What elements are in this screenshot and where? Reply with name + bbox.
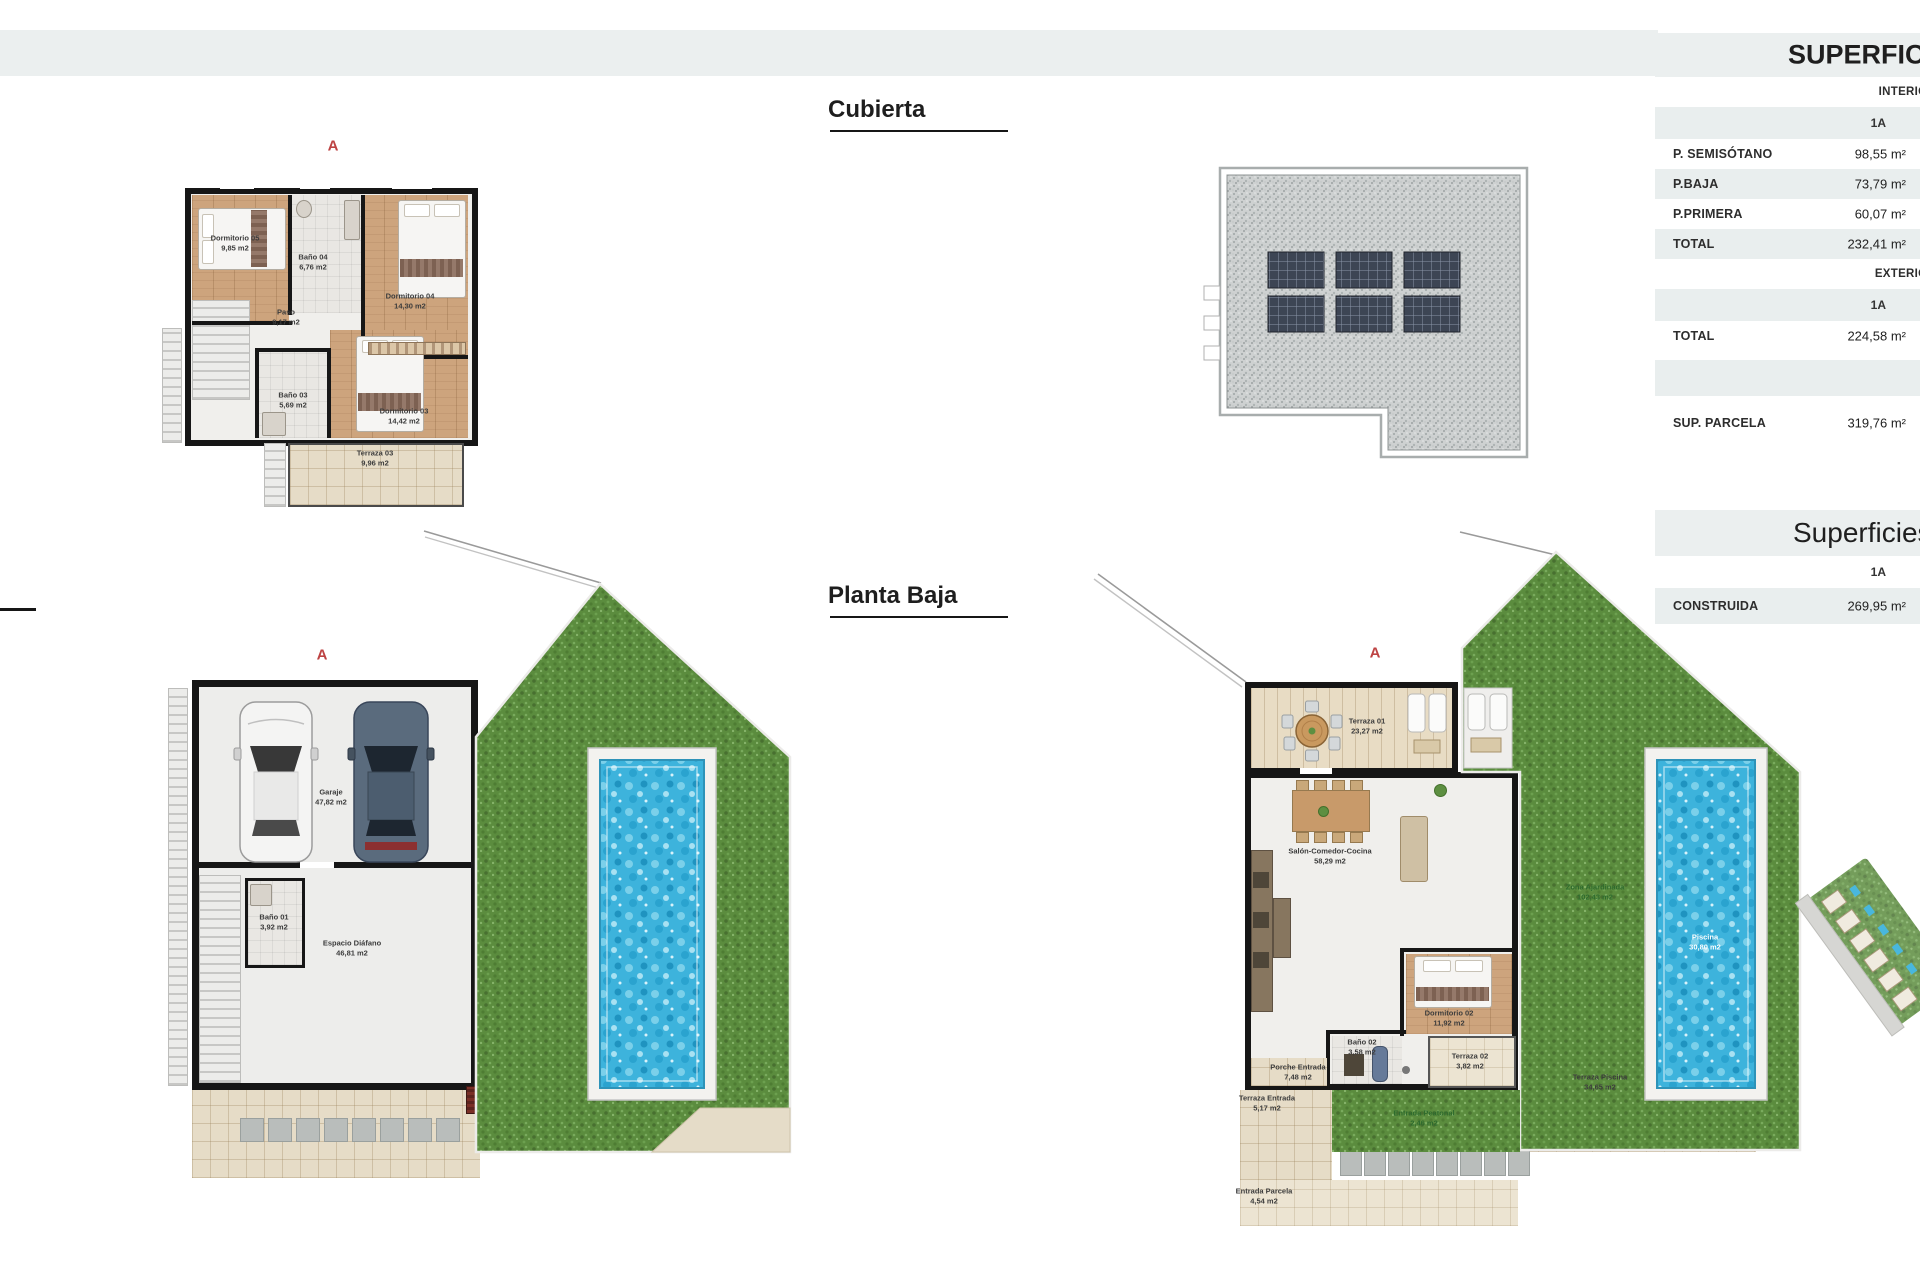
room-label: Baño 013,92 m2: [259, 912, 288, 932]
surface-table-title: SUPERFICIES: [1788, 40, 1920, 71]
pool-deck: [588, 748, 716, 1100]
room-label: Garaje47,82 m2: [315, 787, 347, 807]
room-label: Terraza Piscina34,65 m2: [1573, 1072, 1627, 1092]
exterior-header-row: EXTERIOR: [1655, 259, 1920, 289]
planter: [264, 443, 286, 507]
ground-title-rule: [830, 616, 1008, 618]
unit-header-row: 1A: [1655, 556, 1920, 588]
site-plan-thumbnail: [1796, 854, 1920, 1036]
plant: [1434, 784, 1447, 797]
room-label: Piscina30,80 m2: [1689, 932, 1721, 952]
room-label: Dormitorio 0211,92 m2: [1425, 1008, 1474, 1028]
toilet: [296, 200, 312, 218]
pool-terrace: [1520, 1040, 1756, 1152]
plan-sheet: Cubierta Planta Baja SUPERFICIES INTERIO…: [0, 0, 1920, 1280]
bath-vanity: [344, 200, 360, 240]
section-marker: A: [328, 138, 339, 155]
table-row: CONSTRUIDA269,95 m²: [1655, 588, 1920, 624]
table-row: P.BAJA73,79 m²: [1655, 169, 1920, 199]
pool: [1657, 760, 1755, 1088]
bed: [1414, 956, 1492, 1008]
sofa: [1400, 816, 1428, 882]
stairs: [192, 300, 250, 400]
built-surface-table: Superficies 1A CONSTRUIDA269,95 m²: [1655, 510, 1920, 624]
surface-table: SUPERFICIES INTERIOR 1A P. SEMISÓTANO98,…: [1655, 33, 1920, 441]
room-label: Baño 046,76 m2: [298, 252, 327, 272]
spacer-row: [1655, 360, 1920, 396]
barbecue: [466, 1086, 494, 1114]
ground-plan-title: Planta Baja: [828, 582, 957, 610]
surface-table-header: SUPERFICIES: [1655, 33, 1920, 77]
room-label: Salón-Comedor-Cocina58,29 m2: [1288, 846, 1371, 866]
parcel-row: SUP. PARCELA319,76 m²: [1655, 405, 1920, 441]
room-label: Baño 023,58 m2: [1347, 1037, 1376, 1057]
barbecue: [1518, 1094, 1546, 1126]
solar-panels: [1268, 252, 1460, 332]
unit-header-row: 1A: [1655, 107, 1920, 139]
shower: [250, 884, 272, 906]
pool: [600, 760, 704, 1088]
room-label: Porche Entrada7,48 m2: [1270, 1062, 1325, 1082]
header-band: [0, 30, 1658, 76]
room-label: Zona Ajardinada102,43 m2: [1566, 882, 1624, 902]
roof-plan: [1204, 168, 1527, 457]
built-table-title: Superficies: [1793, 517, 1920, 549]
wardrobe: [368, 342, 466, 355]
section-cut-mark: [0, 608, 36, 611]
shower: [262, 412, 286, 436]
outdoor-shower: [1402, 1066, 1410, 1074]
kitchen-island: [1273, 898, 1291, 958]
room-label: Terraza 0123,27 m2: [1349, 716, 1386, 736]
room-label: Terraza Entrada5,17 m2: [1239, 1093, 1295, 1113]
room-label: Entrada Peatonal2,46 m2: [1393, 1108, 1454, 1128]
room-label: Dormitorio 0314,42 m2: [380, 406, 429, 426]
roof-title-rule: [830, 130, 1008, 132]
room-label: Baño 035,69 m2: [278, 390, 307, 410]
table-row: P. SEMISÓTANO98,55 m²: [1655, 139, 1920, 169]
dining-table: [1292, 790, 1370, 832]
room-label: Dormitorio 0414,30 m2: [386, 291, 435, 311]
bed: [398, 200, 466, 298]
room-label: Paso9,17 m2: [272, 307, 300, 327]
basement-plot: [424, 531, 790, 1152]
room-label: Terraza 023,82 m2: [1452, 1051, 1489, 1071]
room-label: Terraza 039,96 m2: [357, 448, 394, 468]
section-marker: A: [1370, 645, 1381, 662]
side-walkway: [168, 688, 188, 1086]
room-label: Espacio Diáfano46,81 m2: [323, 938, 381, 958]
stairs: [199, 875, 241, 1083]
section-marker: A: [317, 647, 328, 664]
built-table-header: Superficies: [1655, 510, 1920, 556]
table-row: TOTAL224,58 m²: [1655, 321, 1920, 351]
table-row: TOTAL232,41 m²: [1655, 229, 1920, 259]
washer: [1344, 1054, 1364, 1076]
room-label: Dormitorio 059,85 m2: [211, 233, 260, 253]
unit-header-row: 1A: [1655, 289, 1920, 321]
interior-header-row: INTERIOR: [1655, 77, 1920, 107]
room-label: Entrada Parcela4,54 m2: [1236, 1186, 1293, 1206]
table-row: P.PRIMERA60,07 m²: [1655, 199, 1920, 229]
garden: [476, 584, 790, 1152]
roof-plan-title: Cubierta: [828, 96, 925, 124]
balcony-strip: [162, 328, 182, 443]
